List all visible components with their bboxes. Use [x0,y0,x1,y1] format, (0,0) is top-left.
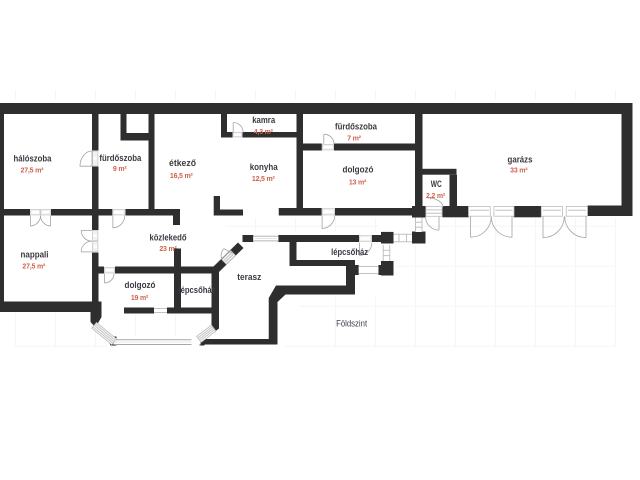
svg-text:étkező: étkező [169,158,196,168]
svg-text:19 m²: 19 m² [131,295,149,302]
svg-text:dolgozó: dolgozó [125,280,156,290]
svg-text:nappali: nappali [21,250,49,260]
svg-text:33 m²: 33 m² [510,168,528,175]
svg-text:WC: WC [431,179,442,189]
svg-text:lépcsőház: lépcsőház [179,285,216,295]
svg-text:4,3 m²: 4,3 m² [254,129,274,136]
svg-text:27,5 m²: 27,5 m² [21,167,45,174]
svg-text:9 m²: 9 m² [113,166,127,173]
svg-text:12,5 m²: 12,5 m² [252,176,276,183]
svg-text:konyha: konyha [250,162,279,172]
svg-text:kamra: kamra [252,115,276,125]
svg-text:2,2 m²: 2,2 m² [426,193,446,200]
svg-text:fürdőszoba: fürdőszoba [335,122,378,132]
svg-text:terasz: terasz [237,272,261,282]
svg-text:dolgozó: dolgozó [343,164,374,174]
svg-text:13 m²: 13 m² [349,180,367,187]
svg-text:7 m²: 7 m² [347,136,361,143]
svg-text:Földszint: Földszint [336,319,367,329]
svg-text:23 m²: 23 m² [159,246,177,253]
svg-text:27,5 m²: 27,5 m² [22,263,46,270]
svg-text:hálószoba: hálószoba [14,153,53,163]
svg-text:16,5 m²: 16,5 m² [170,173,194,180]
svg-text:fürdőszoba: fürdőszoba [99,153,142,163]
svg-text:lépcsőház: lépcsőház [331,247,368,257]
svg-text:közlekedő: közlekedő [150,232,187,242]
svg-text:garázs: garázs [508,155,533,165]
